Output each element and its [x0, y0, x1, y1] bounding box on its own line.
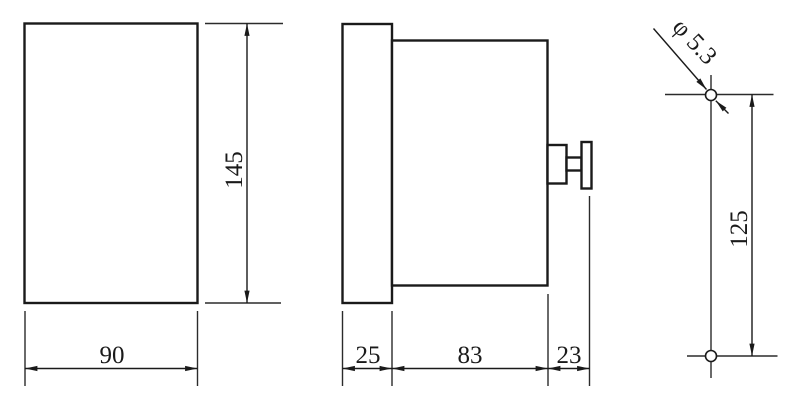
front-view-outline [25, 24, 198, 304]
hole-spacing-label: 125 [726, 210, 753, 248]
width-dim-label: 90 [100, 342, 125, 369]
front-view: 145 90 [25, 24, 284, 387]
dimension-drawing: 145 90 25 [0, 0, 800, 410]
hole-diameter-dimension: φ 5.3 [654, 14, 729, 114]
front-width-dimension: 90 [25, 311, 198, 386]
top-mounting-hole [706, 90, 717, 101]
stud-depth-label: 23 [557, 342, 582, 369]
side-view-bezel-outline [343, 24, 393, 303]
terminal-stud-flange [582, 142, 592, 189]
dimension-drawing-canvas: 145 90 25 [0, 0, 800, 410]
hole-diameter-label: φ 5.3 [667, 14, 722, 70]
body-depth-label: 83 [458, 342, 483, 369]
terminal-stud-base [548, 145, 567, 184]
mounting-hole-view: 125 φ 5.3 [654, 14, 778, 378]
side-view: 25 83 23 [343, 24, 592, 386]
side-view-body-outline [392, 41, 548, 286]
bezel-depth-label: 25 [356, 342, 381, 369]
hole-diameter-counter-arrow [716, 101, 729, 114]
height-dim-label: 145 [221, 151, 248, 189]
front-height-dimension: 145 [205, 24, 283, 304]
bottom-mounting-hole [706, 351, 717, 362]
hole-spacing-dimension: 125 [726, 95, 753, 357]
terminal-stud-shaft [567, 158, 582, 171]
